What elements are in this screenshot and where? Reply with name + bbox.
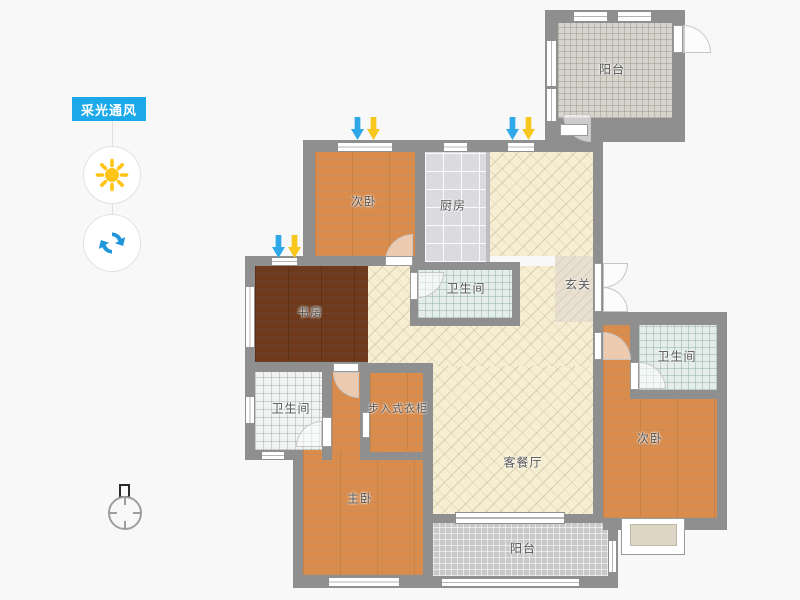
wind-arrow-icon — [506, 117, 519, 140]
room-bathroom-left-label: 卫生间 — [271, 400, 310, 417]
window — [507, 142, 535, 152]
wall — [410, 318, 520, 326]
window — [245, 396, 255, 424]
door — [594, 332, 602, 360]
wall — [512, 262, 520, 326]
wall — [717, 312, 727, 530]
window — [245, 286, 255, 348]
room-bedroom-right-label: 次卧 — [637, 430, 663, 447]
room-living-label: 客餐厅 — [503, 454, 542, 471]
window — [271, 257, 298, 266]
door — [560, 124, 588, 136]
window — [337, 142, 393, 152]
room-bedroom-top-label: 次卧 — [351, 193, 377, 210]
wind-arrow-icon — [351, 117, 364, 140]
lighting-ventilation-tag[interactable]: 采光通风 — [72, 97, 146, 121]
room-entry-label: 玄关 — [565, 276, 591, 293]
door — [322, 417, 332, 447]
room-balcony-top-label: 阳台 — [599, 61, 625, 78]
wall — [360, 452, 423, 460]
wall — [593, 140, 603, 518]
window — [617, 11, 652, 22]
window — [573, 11, 608, 22]
door-arc — [683, 25, 711, 53]
sun-icon — [92, 155, 132, 195]
window — [261, 451, 285, 460]
door — [410, 272, 418, 300]
kitchen-partition — [486, 152, 490, 264]
window — [328, 577, 400, 587]
sun-button[interactable] — [83, 146, 141, 204]
refresh-icon — [94, 225, 130, 261]
window — [546, 40, 557, 87]
wall — [303, 140, 315, 266]
door — [333, 363, 359, 372]
room-bathroom-right-label: 卫生间 — [657, 348, 696, 365]
window — [441, 578, 580, 587]
wall — [603, 312, 727, 325]
room-closet-label: 步入式衣柜 — [368, 400, 428, 416]
window — [546, 88, 557, 122]
room-master[interactable] — [303, 450, 423, 575]
light-arrow-icon — [288, 235, 301, 258]
room-kitchen-label: 厨房 — [440, 197, 466, 214]
room-bathroom-mid-label: 卫生间 — [446, 280, 485, 297]
wall — [410, 262, 520, 270]
room-living[interactable] — [433, 366, 593, 514]
door — [385, 256, 413, 266]
door — [630, 362, 639, 390]
wind-arrow-icon — [272, 235, 285, 258]
entry-door-arc — [603, 287, 628, 312]
wall — [293, 450, 303, 588]
window — [608, 540, 617, 573]
room-bedroom-right[interactable] — [603, 399, 717, 518]
wall — [630, 390, 717, 399]
door — [673, 25, 683, 53]
room-master-label: 主卧 — [347, 490, 373, 507]
entry-door — [594, 263, 602, 312]
bay-window-sill — [630, 524, 677, 546]
sliding-window — [455, 512, 565, 524]
window — [443, 142, 468, 152]
wall — [423, 363, 433, 588]
light-arrow-icon — [522, 117, 535, 140]
room-study-label: 书房 — [297, 304, 323, 321]
light-arrow-icon — [367, 117, 380, 140]
wall — [415, 140, 425, 270]
entry-door-arc — [603, 263, 628, 288]
wall — [545, 10, 685, 23]
room-living[interactable] — [490, 152, 593, 256]
room-balcony-bottom-label: 阳台 — [510, 540, 536, 557]
refresh-button[interactable] — [83, 214, 141, 272]
